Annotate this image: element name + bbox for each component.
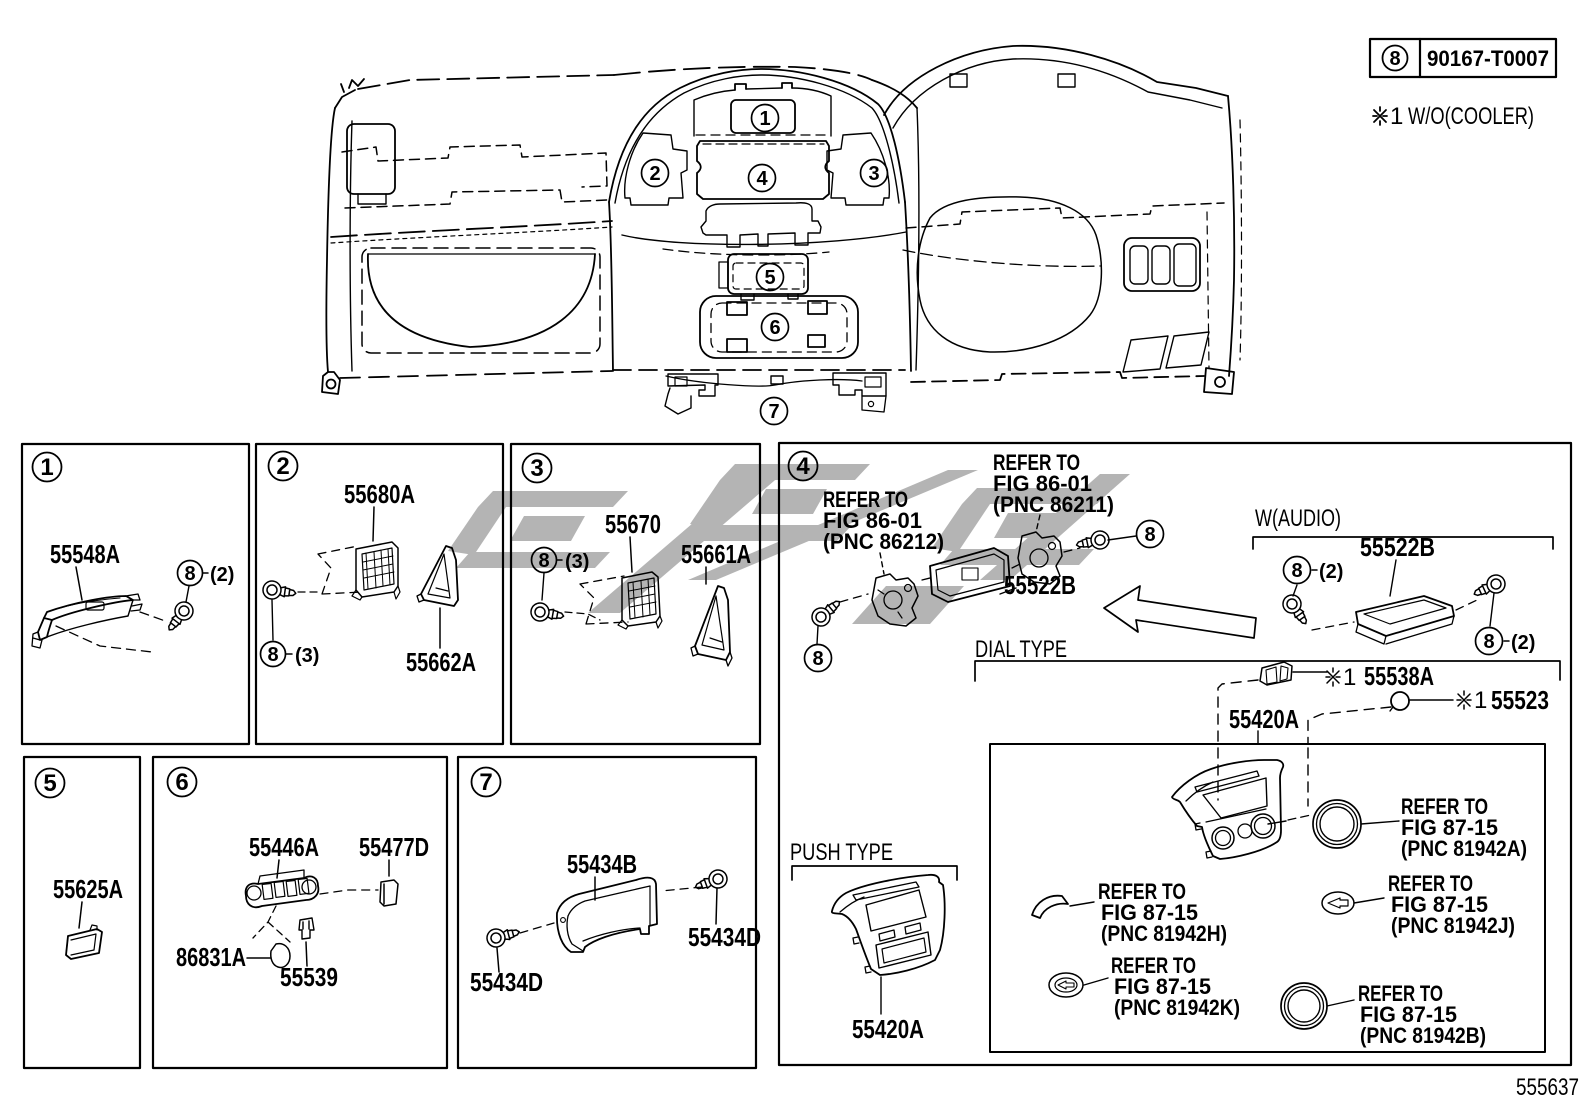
- svg-text:8: 8: [1389, 48, 1400, 70]
- svg-text:8: 8: [184, 563, 195, 585]
- svg-text:55420A: 55420A: [852, 1014, 924, 1044]
- svg-text:55434D: 55434D: [470, 967, 543, 997]
- svg-text:4: 4: [796, 453, 810, 480]
- svg-text:5: 5: [43, 770, 56, 797]
- svg-text:55680A: 55680A: [344, 479, 415, 509]
- svg-text:(PNC 86211): (PNC 86211): [993, 492, 1114, 517]
- svg-text:7: 7: [479, 769, 492, 796]
- svg-text:(2): (2): [1319, 561, 1343, 583]
- svg-text:5: 5: [764, 267, 775, 289]
- svg-text:8: 8: [1483, 631, 1494, 653]
- svg-text:55523: 55523: [1491, 685, 1549, 715]
- svg-text:8: 8: [1144, 524, 1155, 546]
- svg-text:55522B: 55522B: [1004, 570, 1076, 600]
- svg-text:1: 1: [40, 454, 53, 481]
- svg-text:(PNC 86212): (PNC 86212): [823, 529, 944, 554]
- svg-text:6: 6: [175, 769, 188, 796]
- svg-text:(PNC 81942A): (PNC 81942A): [1401, 836, 1527, 861]
- svg-text:55477D: 55477D: [359, 832, 429, 862]
- svg-text:1: 1: [759, 108, 770, 130]
- svg-text:(2): (2): [1511, 632, 1535, 654]
- svg-text:55434D: 55434D: [688, 922, 761, 952]
- svg-text:55548A: 55548A: [50, 539, 120, 569]
- svg-text:8: 8: [812, 648, 823, 670]
- svg-text:2: 2: [276, 453, 289, 480]
- svg-text:55420A: 55420A: [1229, 704, 1299, 734]
- svg-text:86831A: 86831A: [176, 942, 246, 972]
- svg-text:PUSH TYPE: PUSH TYPE: [790, 839, 893, 866]
- svg-text:1: 1: [1474, 687, 1487, 714]
- svg-text:7: 7: [768, 401, 779, 423]
- svg-text:8: 8: [1291, 560, 1302, 582]
- svg-text:90167-T0007: 90167-T0007: [1427, 46, 1549, 71]
- svg-text:4: 4: [756, 168, 768, 190]
- svg-text:(PNC 81942K): (PNC 81942K): [1114, 995, 1240, 1020]
- svg-text:(3): (3): [295, 645, 319, 667]
- svg-text:55522B: 55522B: [1360, 532, 1435, 562]
- svg-text:W(AUDIO): W(AUDIO): [1255, 505, 1341, 532]
- svg-text:55661A: 55661A: [681, 539, 751, 569]
- svg-text:(PNC 81942B): (PNC 81942B): [1360, 1023, 1486, 1048]
- svg-text:DIAL TYPE: DIAL TYPE: [975, 636, 1067, 663]
- svg-text:(2): (2): [210, 564, 234, 586]
- svg-text:(PNC 81942H): (PNC 81942H): [1101, 921, 1227, 946]
- svg-text:(PNC 81942J): (PNC 81942J): [1391, 913, 1515, 938]
- svg-text:55446A: 55446A: [249, 832, 319, 862]
- svg-text:3: 3: [530, 455, 543, 482]
- svg-text:W/O(COOLER): W/O(COOLER): [1408, 103, 1534, 130]
- svg-text:2: 2: [649, 163, 660, 185]
- svg-text:555637: 555637: [1516, 1074, 1579, 1099]
- svg-text:55538A: 55538A: [1364, 661, 1434, 691]
- svg-text:55662A: 55662A: [406, 647, 476, 677]
- svg-text:3: 3: [868, 163, 879, 185]
- svg-text:1: 1: [1343, 664, 1356, 691]
- svg-text:6: 6: [769, 317, 780, 339]
- svg-text:55539: 55539: [280, 962, 338, 992]
- svg-text:(3): (3): [565, 551, 589, 573]
- svg-text:55670: 55670: [605, 509, 661, 539]
- svg-text:8: 8: [538, 550, 549, 572]
- svg-text:8: 8: [267, 644, 278, 666]
- svg-text:55434B: 55434B: [567, 849, 637, 879]
- svg-text:1: 1: [1390, 103, 1403, 130]
- svg-text:55625A: 55625A: [53, 874, 123, 904]
